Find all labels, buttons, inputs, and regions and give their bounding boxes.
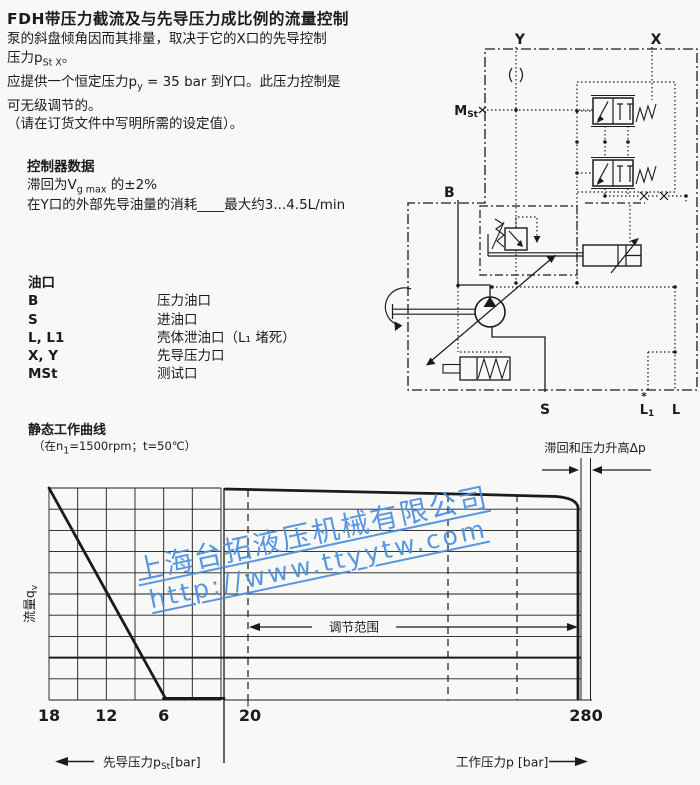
intro-line-4: 可无级调节的。 <box>7 97 427 116</box>
mst-plug-icon <box>479 107 486 113</box>
table-row: X, Y先导压力口 <box>28 347 296 365</box>
table-row: S进油口 <box>28 311 296 329</box>
table-row: MSt测试口 <box>28 365 296 383</box>
range-label: 调节范围 <box>329 620 379 635</box>
svg-text:6: 6 <box>158 706 169 725</box>
arrowheads <box>55 466 602 766</box>
hysteresis-lines <box>581 458 591 700</box>
y-axis-label: 流量qv <box>22 584 40 623</box>
stroking-cylinder-icon <box>583 238 641 273</box>
port-label-l: L <box>672 403 680 418</box>
axis-tick-labels: 18 12 6 20 280 <box>38 706 603 725</box>
hysteresis-label: 滞回和压力升高Δp <box>544 440 646 455</box>
suction-line <box>492 326 545 392</box>
static-curve-chart: 滞回和压力升高Δp 调节范围 流量qv 18 12 6 20 280 先导压力p… <box>0 430 700 785</box>
intro-line-5: （请在订货文件中写明所需的设定值）。 <box>7 115 427 134</box>
pressure-valve-icon <box>492 219 527 250</box>
intro-paragraph: 泵的斜盘倾角因而其排量，取决于它的X口的先导控制 压力pSt X。 应提供一个恒… <box>7 30 427 134</box>
rotation-arrow-icon <box>385 288 411 325</box>
port-label-l1: L1 <box>640 403 655 419</box>
pilot-valve-2-icon <box>591 158 656 189</box>
adjustment-arrow <box>431 259 551 361</box>
working-pressure-curve <box>225 489 579 700</box>
page-title: FDH带压力截流及与先导压力成比例的流量控制 <box>7 7 349 29</box>
x-axis-right-label: 工作压力p [bar] <box>456 755 548 770</box>
port-label-y: Y <box>514 32 526 48</box>
ports-table: 油口 B压力油口 S进油口 L, L1壳体泄油口（L₁ 堵死） X, Y先导压力… <box>28 274 296 384</box>
intro-line-2: 压力pSt X。 <box>7 49 427 73</box>
dashed-gridlines <box>248 490 517 700</box>
port-label-x: X <box>651 32 662 48</box>
spring-icon <box>478 359 508 379</box>
controller-consumption-line: 在Y口的外部先导油量的消耗____最大约3...4.5L/min <box>27 193 345 213</box>
port-label-mst: MSt <box>454 104 478 120</box>
svg-text:12: 12 <box>95 706 117 725</box>
orifice-icon <box>640 192 668 200</box>
intro-line-3: 应提供一个恒定压力py = 35 bar 到Y口。此压力控制是 <box>7 73 427 97</box>
x-axis-left-label: 先导压力pSt[bar] <box>103 755 201 773</box>
plugged-port-mark: * <box>641 390 647 403</box>
intro-line-1: 泵的斜盘倾角因而其排量，取决于它的X口的先导控制 <box>7 30 427 49</box>
junction-dots <box>456 108 688 354</box>
grid-horizontals <box>49 488 592 700</box>
control-block-boundary <box>480 206 577 275</box>
svg-text:20: 20 <box>239 706 261 725</box>
table-row: L, L1壳体泄油口（L₁ 堵死） <box>28 329 296 347</box>
table-row: B压力油口 <box>28 292 296 310</box>
variable-pump-icon <box>475 297 505 328</box>
svg-text:280: 280 <box>569 706 602 725</box>
controller-data-heading: 控制器数据 <box>27 155 95 175</box>
drive-shaft <box>393 304 476 319</box>
port-label-b: B <box>444 185 455 201</box>
counter-piston-icon <box>443 357 510 380</box>
spring-icon <box>636 104 656 122</box>
pilot-valve-1-icon <box>591 96 656 127</box>
pilot-pressure-curve <box>49 488 224 698</box>
spring-icon <box>636 166 656 184</box>
svg-text:18: 18 <box>38 706 60 725</box>
pump-unit-boundary <box>408 49 697 390</box>
port-label-s: S <box>540 402 550 418</box>
hydraulic-schematic: Y X MSt B S * L1 L <box>390 25 700 420</box>
ports-heading: 油口 <box>28 274 296 292</box>
